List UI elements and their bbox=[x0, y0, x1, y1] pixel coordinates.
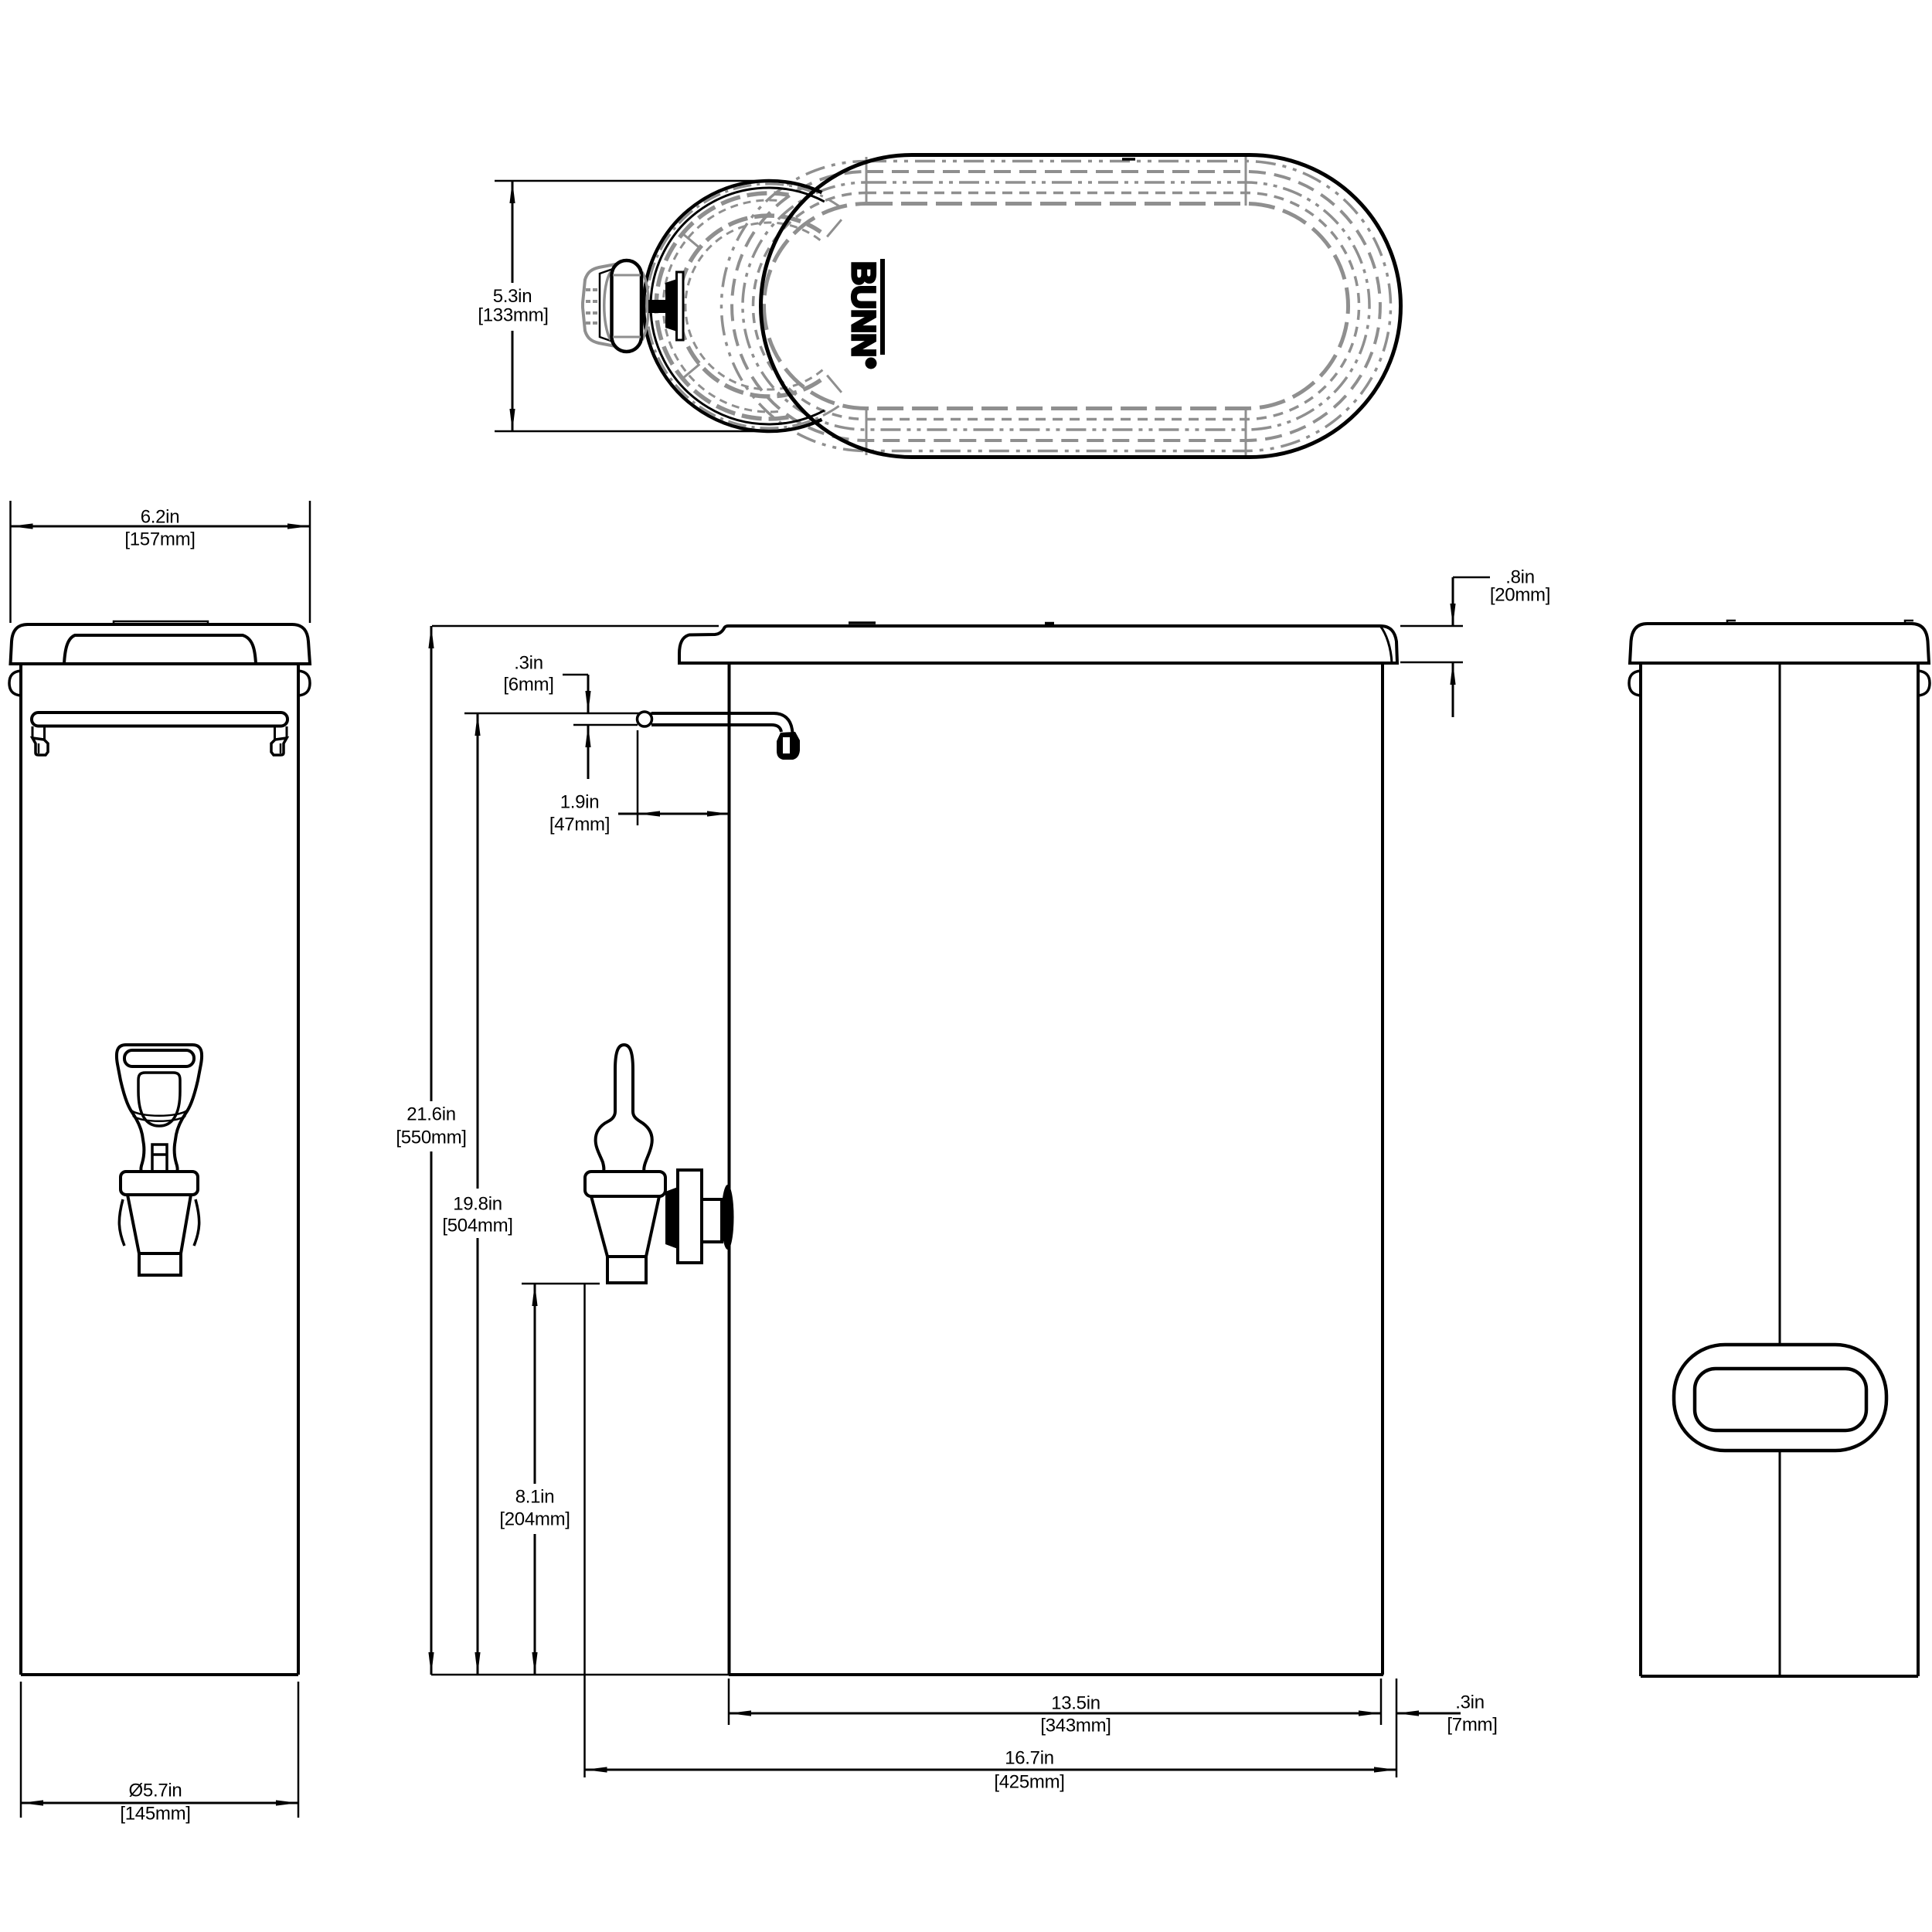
svg-text:[157mm]: [157mm] bbox=[124, 529, 195, 550]
svg-text:[47mm]: [47mm] bbox=[549, 815, 610, 835]
svg-text:BUNN: BUNN bbox=[845, 261, 882, 357]
svg-text:.3in: .3in bbox=[1455, 1692, 1485, 1713]
svg-text:[343mm]: [343mm] bbox=[1040, 1716, 1111, 1736]
svg-text:Ø5.7in: Ø5.7in bbox=[129, 1781, 182, 1801]
svg-text:.3in: .3in bbox=[514, 653, 543, 674]
svg-text:8.1in: 8.1in bbox=[515, 1487, 555, 1508]
svg-text:[7mm]: [7mm] bbox=[1447, 1715, 1497, 1736]
svg-text:[504mm]: [504mm] bbox=[442, 1216, 512, 1236]
svg-text:19.8in: 19.8in bbox=[453, 1194, 502, 1215]
svg-text:[550mm]: [550mm] bbox=[396, 1128, 466, 1148]
svg-text:5.3in: 5.3in bbox=[493, 286, 532, 307]
svg-text:[133mm]: [133mm] bbox=[478, 305, 548, 326]
svg-text:13.5in: 13.5in bbox=[1051, 1693, 1100, 1714]
svg-text:[145mm]: [145mm] bbox=[120, 1804, 190, 1825]
svg-text:[425mm]: [425mm] bbox=[994, 1772, 1064, 1793]
svg-text:[20mm]: [20mm] bbox=[1490, 585, 1550, 606]
svg-text:6.2in: 6.2in bbox=[141, 507, 180, 528]
svg-text:[6mm]: [6mm] bbox=[503, 675, 553, 696]
svg-text:[204mm]: [204mm] bbox=[499, 1509, 570, 1530]
svg-text:1.9in: 1.9in bbox=[560, 792, 600, 813]
svg-text:21.6in: 21.6in bbox=[406, 1104, 456, 1125]
svg-text:16.7in: 16.7in bbox=[1005, 1748, 1054, 1769]
